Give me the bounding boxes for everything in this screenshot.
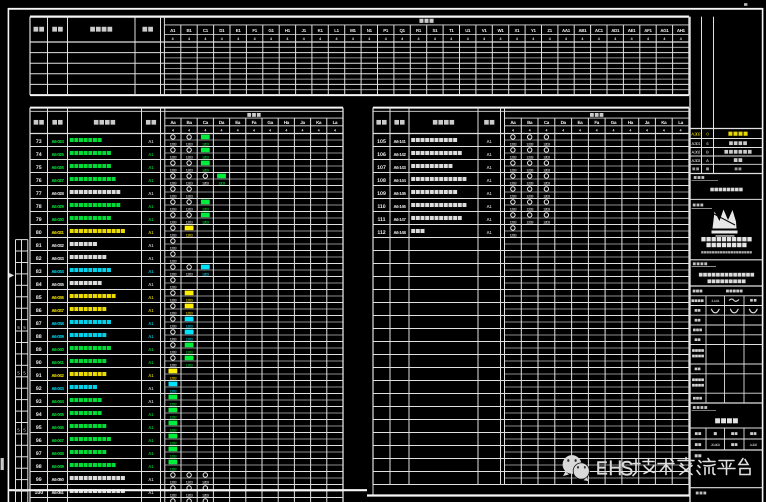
svg-text:A.302: A.302 [691,150,701,155]
svg-text:4: 4 [188,129,190,133]
svg-text:H1: H1 [285,28,291,33]
svg-text:4: 4 [237,37,239,41]
svg-text:1203: 1203 [186,182,193,186]
svg-text:A6-042: A6-042 [52,373,65,378]
svg-text:93: 93 [36,399,42,405]
svg-text:K1: K1 [318,28,324,33]
svg-text:87: 87 [36,321,42,327]
svg-text:X1: X1 [515,28,521,33]
svg-text:1203: 1203 [170,325,177,329]
svg-text:4: 4 [647,37,649,41]
svg-text:1203: 1203 [510,156,517,160]
svg-text:1203: 1203 [543,143,550,147]
svg-text:A6-026: A6-026 [52,165,65,170]
svg-text:4: 4 [596,129,598,133]
svg-text:1203: 1203 [543,156,550,160]
svg-text:4: 4 [680,129,682,133]
svg-text:1203: 1203 [526,195,533,199]
svg-text:81: 81 [36,243,42,249]
svg-text:A6-030: A6-030 [52,217,65,222]
svg-text:M1: M1 [350,28,356,33]
svg-text:1203: 1203 [170,312,177,316]
svg-text:1203: 1203 [170,481,177,485]
svg-text:88: 88 [36,334,42,340]
svg-text:4: 4 [579,129,581,133]
svg-text:AC1: AC1 [595,28,604,33]
svg-text:A1: A1 [148,269,154,274]
svg-text:107: 107 [377,165,386,171]
svg-text:A6-031: A6-031 [52,230,65,235]
svg-text:1203: 1203 [186,195,193,199]
svg-text:108: 108 [377,178,386,184]
svg-text:1203: 1203 [170,416,177,420]
svg-text:A1: A1 [148,256,154,261]
svg-text:1203: 1203 [186,312,193,316]
svg-text:A6-142: A6-142 [394,152,407,157]
svg-text:1203: 1203 [170,442,177,446]
svg-text:82: 82 [36,256,42,262]
svg-text:A1: A1 [148,425,154,430]
svg-text:A6-028: A6-028 [52,191,65,196]
svg-text:Ka: Ka [661,120,667,125]
svg-text:1203: 1203 [170,390,177,394]
svg-text:Ga: Ga [611,120,617,125]
svg-text:96: 96 [36,438,42,444]
svg-text:A1: A1 [148,399,154,404]
svg-text:105: 105 [377,139,386,145]
svg-text:A1: A1 [148,230,154,235]
svg-text:A6-046: A6-046 [52,425,65,430]
svg-text:A1: A1 [148,347,154,352]
svg-text:1203: 1203 [170,208,177,212]
svg-text:1203: 1203 [170,182,177,186]
svg-text:A6-049: A6-049 [52,464,65,469]
svg-text:1203: 1203 [186,364,193,368]
svg-text:78: 78 [36,204,42,210]
svg-text:1203: 1203 [526,208,533,212]
svg-text:W1: W1 [498,28,505,33]
svg-text:A1: A1 [487,139,493,144]
svg-text:Ea: Ea [235,120,241,125]
svg-text:A1: A1 [148,178,154,183]
svg-text:1203: 1203 [543,182,550,186]
svg-text:4: 4 [352,37,354,41]
svg-text:4: 4 [545,129,547,133]
svg-text:A1: A1 [148,321,154,326]
svg-text:B: B [706,150,709,155]
svg-text:4: 4 [450,37,452,41]
svg-text:A6-050: A6-050 [52,477,65,482]
svg-text:4: 4 [680,37,682,41]
svg-text:1203: 1203 [170,221,177,225]
svg-text:A6-033: A6-033 [52,256,65,261]
svg-text:1203: 1203 [170,403,177,407]
svg-text:4: 4 [385,37,387,41]
svg-text:Ga: Ga [267,120,273,125]
svg-text:4: 4 [204,37,206,41]
svg-text:1203: 1203 [526,143,533,147]
svg-text:1203: 1203 [186,273,193,277]
svg-text:A6-148: A6-148 [394,230,407,235]
svg-text:Fa: Fa [252,120,257,125]
svg-text:97: 97 [36,451,42,457]
svg-text:A1: A1 [148,191,154,196]
svg-text:1203: 1203 [170,143,177,147]
svg-text:86: 86 [36,308,42,314]
svg-text:90: 90 [36,360,42,366]
svg-text:1203: 1203 [510,169,517,173]
svg-text:1203: 1203 [170,260,177,264]
svg-text:4: 4 [631,37,633,41]
svg-text:A1: A1 [487,217,493,222]
svg-text:94: 94 [36,412,42,418]
svg-text:1203: 1203 [202,494,209,498]
svg-text:P1: P1 [383,28,389,33]
svg-text:1203: 1203 [202,143,209,147]
svg-text:A1: A1 [148,464,154,469]
svg-text:Ca: Ca [544,120,550,125]
svg-text:A: A [706,158,709,163]
svg-text:4: 4 [562,129,564,133]
svg-text:1203: 1203 [170,377,177,381]
svg-text:A.303: A.303 [691,158,701,163]
svg-text:A1: A1 [148,373,154,378]
svg-text:A1: A1 [170,28,176,33]
svg-text:4: 4 [221,37,223,41]
svg-text:Ha: Ha [284,120,290,125]
svg-text:1203: 1203 [218,182,225,186]
svg-text:1203: 1203 [170,286,177,290]
svg-text:A6-044: A6-044 [52,399,65,404]
svg-text:74: 74 [36,152,42,158]
svg-text:4: 4 [434,37,436,41]
svg-text:1203: 1203 [186,143,193,147]
svg-text:1203: 1203 [202,156,209,160]
svg-text:Aa: Aa [510,120,516,125]
svg-text:4: 4 [302,129,304,133]
svg-text:AD1: AD1 [611,28,620,33]
svg-text:4: 4 [253,129,255,133]
svg-text:4: 4 [483,37,485,41]
svg-text:A1: A1 [148,308,154,313]
svg-text:A1: A1 [487,230,493,235]
svg-text:1203: 1203 [526,221,533,225]
svg-text:3-4-01: 3-4-01 [711,299,719,303]
svg-text:4: 4 [237,129,239,133]
svg-text:A6-143: A6-143 [394,165,407,170]
svg-text:92: 92 [36,386,42,392]
svg-text:1203: 1203 [202,273,209,277]
svg-text:75: 75 [36,165,42,171]
svg-text:1203: 1203 [170,299,177,303]
svg-text:U1: U1 [465,28,471,33]
svg-text:4: 4 [286,37,288,41]
svg-text:A1: A1 [487,152,493,157]
svg-text:4: 4 [467,37,469,41]
svg-text:AB1: AB1 [578,28,587,33]
svg-text:La: La [678,120,683,125]
svg-text:4: 4 [516,37,518,41]
svg-text:1203: 1203 [202,221,209,225]
svg-text:1203: 1203 [170,494,177,498]
svg-text:AG1: AG1 [660,28,669,33]
svg-text:4: 4 [368,37,370,41]
svg-text:A6-041: A6-041 [52,360,65,365]
svg-text:1203: 1203 [186,208,193,212]
svg-text:4: 4 [512,129,514,133]
svg-text:4: 4 [334,129,336,133]
svg-text:4: 4 [285,129,287,133]
svg-text:A6-034: A6-034 [52,269,65,274]
svg-text:1203: 1203 [202,182,209,186]
svg-text:20-003: 20-003 [711,443,720,447]
svg-text:1203: 1203 [186,299,193,303]
svg-text:A1: A1 [148,204,154,209]
svg-text:77: 77 [36,191,42,197]
svg-text:4: 4 [318,129,320,133]
svg-text:A.302: A.302 [750,443,758,447]
svg-text:Y1: Y1 [531,28,537,33]
svg-text:91: 91 [36,373,42,379]
svg-text:4: 4 [529,129,531,133]
svg-text:98: 98 [36,464,42,470]
svg-text:4: 4 [532,37,534,41]
svg-text:A6-144: A6-144 [394,178,407,183]
svg-text:E1: E1 [236,28,242,33]
svg-text:A6-036: A6-036 [52,295,65,300]
svg-text:Q1: Q1 [399,28,405,33]
svg-text:A6-025: A6-025 [52,152,65,157]
svg-text:A1: A1 [148,451,154,456]
svg-text:A1: A1 [148,139,154,144]
svg-text:1203: 1203 [543,221,550,225]
svg-text:Da: Da [561,120,567,125]
svg-text:A1: A1 [148,438,154,443]
svg-text:1203: 1203 [170,195,177,199]
svg-text:1203: 1203 [170,234,177,238]
svg-text:A1: A1 [148,360,154,365]
svg-text:4: 4 [172,129,174,133]
svg-text:S1: S1 [433,28,439,33]
svg-text:1203: 1203 [170,169,177,173]
svg-text:Ka: Ka [316,120,322,125]
svg-text:4: 4 [303,37,305,41]
svg-text:1203: 1203 [170,156,177,160]
svg-text:1203: 1203 [510,143,517,147]
svg-text:A1: A1 [148,165,154,170]
svg-text:Ba: Ba [187,120,193,125]
svg-text:A6-024: A6-024 [52,139,65,144]
svg-text:A1: A1 [148,412,154,417]
svg-text:A1: A1 [148,295,154,300]
svg-text:4: 4 [613,129,615,133]
svg-text:1203: 1203 [510,208,517,212]
svg-text:Ha: Ha [628,120,634,125]
svg-text:A6-035: A6-035 [52,282,65,287]
svg-text:1203: 1203 [510,234,517,238]
svg-text:4: 4 [598,37,600,41]
svg-text:A1: A1 [487,191,493,196]
svg-text:83: 83 [36,269,42,275]
svg-text:AH1: AH1 [677,28,686,33]
svg-text:A.302: A.302 [691,132,701,137]
svg-text:1203: 1203 [170,338,177,342]
svg-text:Ea: Ea [578,120,584,125]
svg-text:1203: 1203 [543,169,550,173]
svg-text:D1: D1 [219,28,225,33]
svg-text:4: 4 [221,129,223,133]
svg-text:A6-146: A6-146 [394,204,407,209]
svg-text:A6-145: A6-145 [394,191,407,196]
svg-text:4: 4 [663,129,665,133]
svg-text:A1: A1 [487,178,493,183]
svg-text:A6-045: A6-045 [52,412,65,417]
svg-text:1203: 1203 [202,481,209,485]
svg-text:1203: 1203 [186,338,193,342]
svg-text:Fa: Fa [594,120,599,125]
svg-text:1203: 1203 [186,156,193,160]
svg-text:Aa: Aa [170,120,176,125]
svg-text:A1: A1 [148,477,154,482]
svg-text:73: 73 [36,139,42,145]
svg-text:1203: 1203 [186,221,193,225]
svg-text:A6-029: A6-029 [52,204,65,209]
svg-text:A6-147: A6-147 [394,217,407,222]
svg-text:111: 111 [377,217,385,223]
svg-text:4: 4 [336,37,338,41]
svg-text:A1: A1 [487,204,493,209]
svg-text:95: 95 [36,425,42,431]
svg-text:Ba: Ba [527,120,533,125]
svg-text:1203: 1203 [510,221,517,225]
svg-text:1203: 1203 [543,208,550,212]
svg-text:A6-040: A6-040 [52,347,65,352]
svg-text:1203: 1203 [186,325,193,329]
svg-text:76: 76 [36,178,42,184]
svg-text:AA1: AA1 [562,28,571,33]
svg-text:4: 4 [549,37,551,41]
svg-text:1203: 1203 [186,169,193,173]
svg-text:R1: R1 [416,28,422,33]
svg-text:110: 110 [377,204,385,210]
svg-text:C1: C1 [203,28,209,33]
svg-text:A6-141: A6-141 [394,139,407,144]
svg-text:4: 4 [172,37,174,41]
svg-text:A1: A1 [148,282,154,287]
svg-text:N1: N1 [367,28,373,33]
svg-text:4: 4 [663,37,665,41]
svg-text:1203: 1203 [510,182,517,186]
svg-text:La: La [333,120,338,125]
svg-text:Da: Da [219,120,225,125]
svg-text:A1: A1 [148,334,154,339]
svg-text:A1: A1 [148,152,154,157]
svg-text:4: 4 [401,37,403,41]
svg-text:4: 4 [270,37,272,41]
svg-text:85: 85 [36,295,42,301]
svg-text:A1: A1 [487,165,493,170]
svg-text:4: 4 [418,37,420,41]
svg-text:106: 106 [377,152,386,158]
svg-text:1203: 1203 [202,208,209,212]
svg-text:A.301: A.301 [691,141,701,146]
svg-text:A6-038: A6-038 [52,321,65,326]
svg-text:1203: 1203 [170,429,177,433]
svg-text:A1: A1 [148,243,154,248]
svg-text:84: 84 [36,282,42,288]
svg-text:A6-048: A6-048 [52,451,65,456]
svg-text:1203: 1203 [170,351,177,355]
svg-text:1203: 1203 [186,234,193,238]
svg-text:1203: 1203 [170,247,177,251]
svg-text:4: 4 [565,37,567,41]
svg-text:1203: 1203 [202,169,209,173]
svg-text:1203: 1203 [170,273,177,277]
svg-text:V1: V1 [482,28,488,33]
svg-text:B1: B1 [186,28,192,33]
svg-text:1203: 1203 [170,468,177,472]
svg-text:A6-037: A6-037 [52,308,65,313]
svg-text:4: 4 [629,129,631,133]
svg-text:A6-043: A6-043 [52,386,65,391]
svg-text:A6-039: A6-039 [52,334,65,339]
svg-text:1203: 1203 [186,494,193,498]
svg-text:A1: A1 [148,217,154,222]
svg-text:A6-047: A6-047 [52,438,65,443]
svg-text:1203: 1203 [186,351,193,355]
svg-text:A1: A1 [148,386,154,391]
svg-text:1203: 1203 [526,156,533,160]
svg-text:4: 4 [500,37,502,41]
svg-text:79: 79 [36,217,42,223]
svg-text:80: 80 [36,230,42,236]
svg-text:1203: 1203 [543,195,550,199]
svg-text:112: 112 [377,230,385,236]
svg-text:99: 99 [36,477,42,483]
svg-text:1203: 1203 [170,455,177,459]
svg-text:4: 4 [188,37,190,41]
svg-text:1203: 1203 [526,182,533,186]
svg-text:1203: 1203 [170,364,177,368]
svg-text:G1: G1 [268,28,274,33]
svg-text:4: 4 [204,129,206,133]
svg-text:A6-027: A6-027 [52,178,65,183]
svg-text:A6-032: A6-032 [52,243,65,248]
svg-text:4: 4 [319,37,321,41]
svg-text:1203: 1203 [186,481,193,485]
svg-text:AE1: AE1 [628,28,636,33]
svg-text:4: 4 [614,37,616,41]
svg-text:4: 4 [646,129,648,133]
svg-text:89: 89 [36,347,42,353]
svg-text:109: 109 [377,191,386,197]
svg-text:4: 4 [269,129,271,133]
svg-text:1203: 1203 [510,195,517,199]
svg-text:4: 4 [581,37,583,41]
svg-text:Ca: Ca [203,120,209,125]
svg-text:1203: 1203 [526,169,533,173]
svg-text:AF1: AF1 [644,28,652,33]
svg-text:4: 4 [254,37,256,41]
